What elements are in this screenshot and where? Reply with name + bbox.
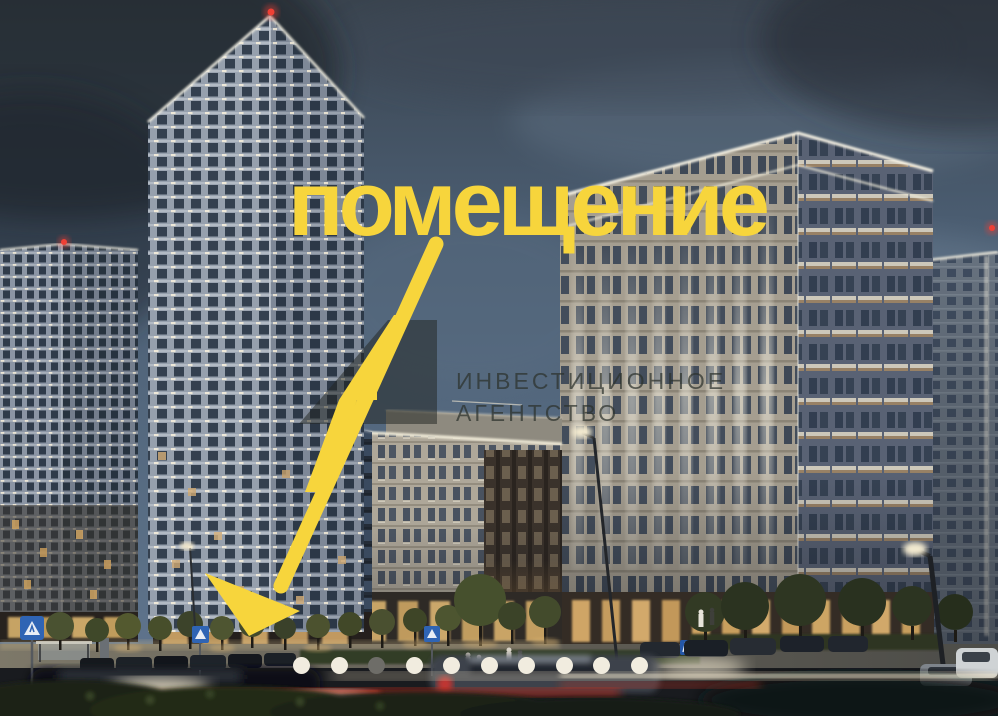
- gallery-dots: [293, 657, 648, 674]
- headline-label: помещение: [288, 158, 765, 250]
- gallery-dot[interactable]: [443, 657, 460, 674]
- gallery-dot[interactable]: [593, 657, 610, 674]
- gallery-dot[interactable]: [481, 657, 498, 674]
- listing-photo: помещение ИНВЕСТИЦИОННОЕ АГЕНТСТВО: [0, 0, 998, 716]
- watermark-line1: ИНВЕСТИЦИОННОЕ: [456, 370, 726, 393]
- gallery-dot[interactable]: [331, 657, 348, 674]
- gallery-dot[interactable]: [293, 657, 310, 674]
- gallery-dot[interactable]: [518, 657, 535, 674]
- watermark-line2: АГЕНТСТВО: [456, 402, 619, 425]
- gallery-dot[interactable]: [368, 657, 385, 674]
- gallery-dot[interactable]: [556, 657, 573, 674]
- tower-left: [0, 236, 138, 643]
- building-scene: [0, 0, 998, 716]
- gallery-dot[interactable]: [631, 657, 648, 674]
- gallery-dot[interactable]: [406, 657, 423, 674]
- tower-central: [148, 4, 364, 632]
